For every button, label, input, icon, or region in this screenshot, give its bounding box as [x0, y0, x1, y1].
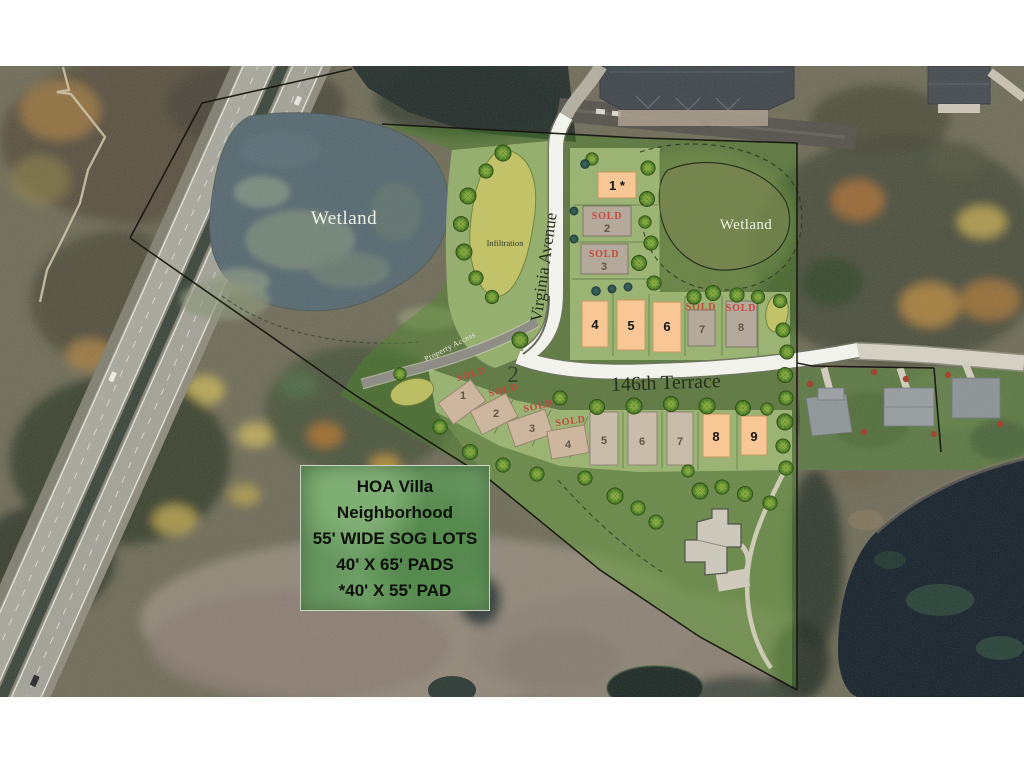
wetland-pond-label: Wetland [311, 208, 377, 229]
tree-icon [763, 496, 777, 510]
lot: 7 [667, 412, 693, 465]
legend-info-box: HOA Villa Neighborhood 55' WIDE SOG LOTS… [300, 465, 490, 611]
bush-icon [580, 159, 589, 168]
tree-icon [663, 396, 678, 411]
tree-icon [776, 439, 790, 453]
sold-label: SOLD [589, 249, 619, 260]
tree-icon [626, 398, 642, 414]
lot-number: 7 [699, 324, 705, 336]
tree-icon [578, 471, 592, 485]
site-plan-page: 1 * SOLD 2 SOLD 3 4 5 6 [0, 0, 1024, 768]
lot: SOLD 8 [726, 301, 757, 347]
lot-number: 4 [591, 317, 599, 332]
lot-number: 6 [639, 436, 645, 448]
tree-icon [699, 398, 715, 414]
lot: 9 [741, 416, 767, 455]
lot: 5 [617, 300, 645, 350]
infiltration-label: Infiltration [487, 238, 525, 248]
bush-icon [624, 283, 632, 291]
lot-number: 7 [677, 436, 683, 448]
sold-label: SOLD [726, 303, 756, 314]
tree-icon [779, 391, 793, 405]
tree-icon [687, 290, 701, 304]
lot: 6 [628, 412, 657, 465]
lot-number: 8 [712, 429, 719, 444]
tree-icon [462, 444, 477, 459]
tree-icon [777, 414, 793, 430]
tree-icon [631, 501, 645, 515]
lot-number: 1 * [609, 178, 626, 193]
tree-icon [496, 458, 510, 472]
tree-icon [607, 488, 623, 504]
bush-icon [570, 207, 578, 215]
tree-icon [780, 345, 794, 359]
tree-icon [512, 332, 528, 348]
tree-icon [495, 145, 511, 161]
lot-number: 2 [604, 223, 610, 235]
tree-icon [735, 400, 750, 415]
lot: SOLD 7 [686, 302, 716, 346]
sold-label: SOLD [592, 211, 622, 222]
lot: 8 [703, 414, 730, 457]
info-line-1: HOA Villa [301, 474, 489, 500]
tree-icon [485, 290, 499, 304]
tree-icon [692, 483, 708, 499]
tree-icon [639, 216, 652, 229]
lot: 1 * [598, 172, 636, 198]
tree-icon [394, 368, 407, 381]
tree-icon [460, 188, 476, 204]
info-line-2: Neighborhood [301, 500, 489, 526]
info-line-5: *40' X 55' PAD [301, 578, 489, 604]
tree-icon [705, 285, 720, 300]
block-number: 2 [507, 362, 519, 387]
146th-terrace-label: 146th Terrace [611, 370, 722, 396]
lot: 5 [590, 412, 618, 465]
lot-number: 1 [460, 390, 466, 402]
bush-icon [570, 235, 578, 243]
lot-number: 3 [601, 261, 607, 273]
lot-number: 5 [601, 435, 607, 447]
lot-number: 3 [529, 423, 535, 435]
tree-icon [469, 271, 483, 285]
lot-number: 8 [738, 322, 744, 334]
tree-icon [737, 486, 752, 501]
tree-icon [644, 236, 658, 250]
lot: 6 [653, 302, 681, 352]
tree-icon [589, 399, 604, 414]
tree-icon [761, 403, 774, 416]
lot-number: 6 [663, 319, 670, 334]
tree-icon [682, 465, 695, 478]
tree-icon [779, 461, 793, 475]
tree-icon [777, 367, 792, 382]
lot-number: 5 [627, 318, 634, 333]
tree-icon [647, 276, 661, 290]
lot-number: 2 [493, 408, 499, 420]
tree-icon [649, 515, 663, 529]
tree-icon [751, 290, 765, 304]
tree-icon [639, 191, 654, 206]
lot-number: 4 [565, 439, 572, 451]
tree-icon [730, 288, 744, 302]
tree-icon [433, 420, 447, 434]
bush-icon [608, 285, 616, 293]
info-line-4: 40' X 65' PADS [301, 552, 489, 578]
tree-icon [715, 480, 729, 494]
aerial-site-map: 1 * SOLD 2 SOLD 3 4 5 6 [0, 0, 1024, 768]
tree-icon [479, 164, 493, 178]
tree-icon [773, 294, 787, 308]
wetland-east-label: Wetland [720, 217, 773, 233]
tree-icon [641, 161, 655, 175]
info-line-3: 55' WIDE SOG LOTS [301, 526, 489, 552]
bush-icon [591, 286, 600, 295]
tree-icon [631, 255, 646, 270]
lot: SOLD 2 [583, 206, 631, 236]
lot-number: 9 [750, 429, 757, 444]
tree-icon [530, 467, 544, 481]
tree-icon [776, 323, 790, 337]
lot: SOLD 3 [581, 244, 628, 274]
tree-icon [553, 391, 567, 405]
tree-icon [456, 244, 472, 260]
sold-label: SOLD [686, 302, 716, 313]
lot: 4 [582, 301, 608, 347]
tree-icon [453, 216, 468, 231]
